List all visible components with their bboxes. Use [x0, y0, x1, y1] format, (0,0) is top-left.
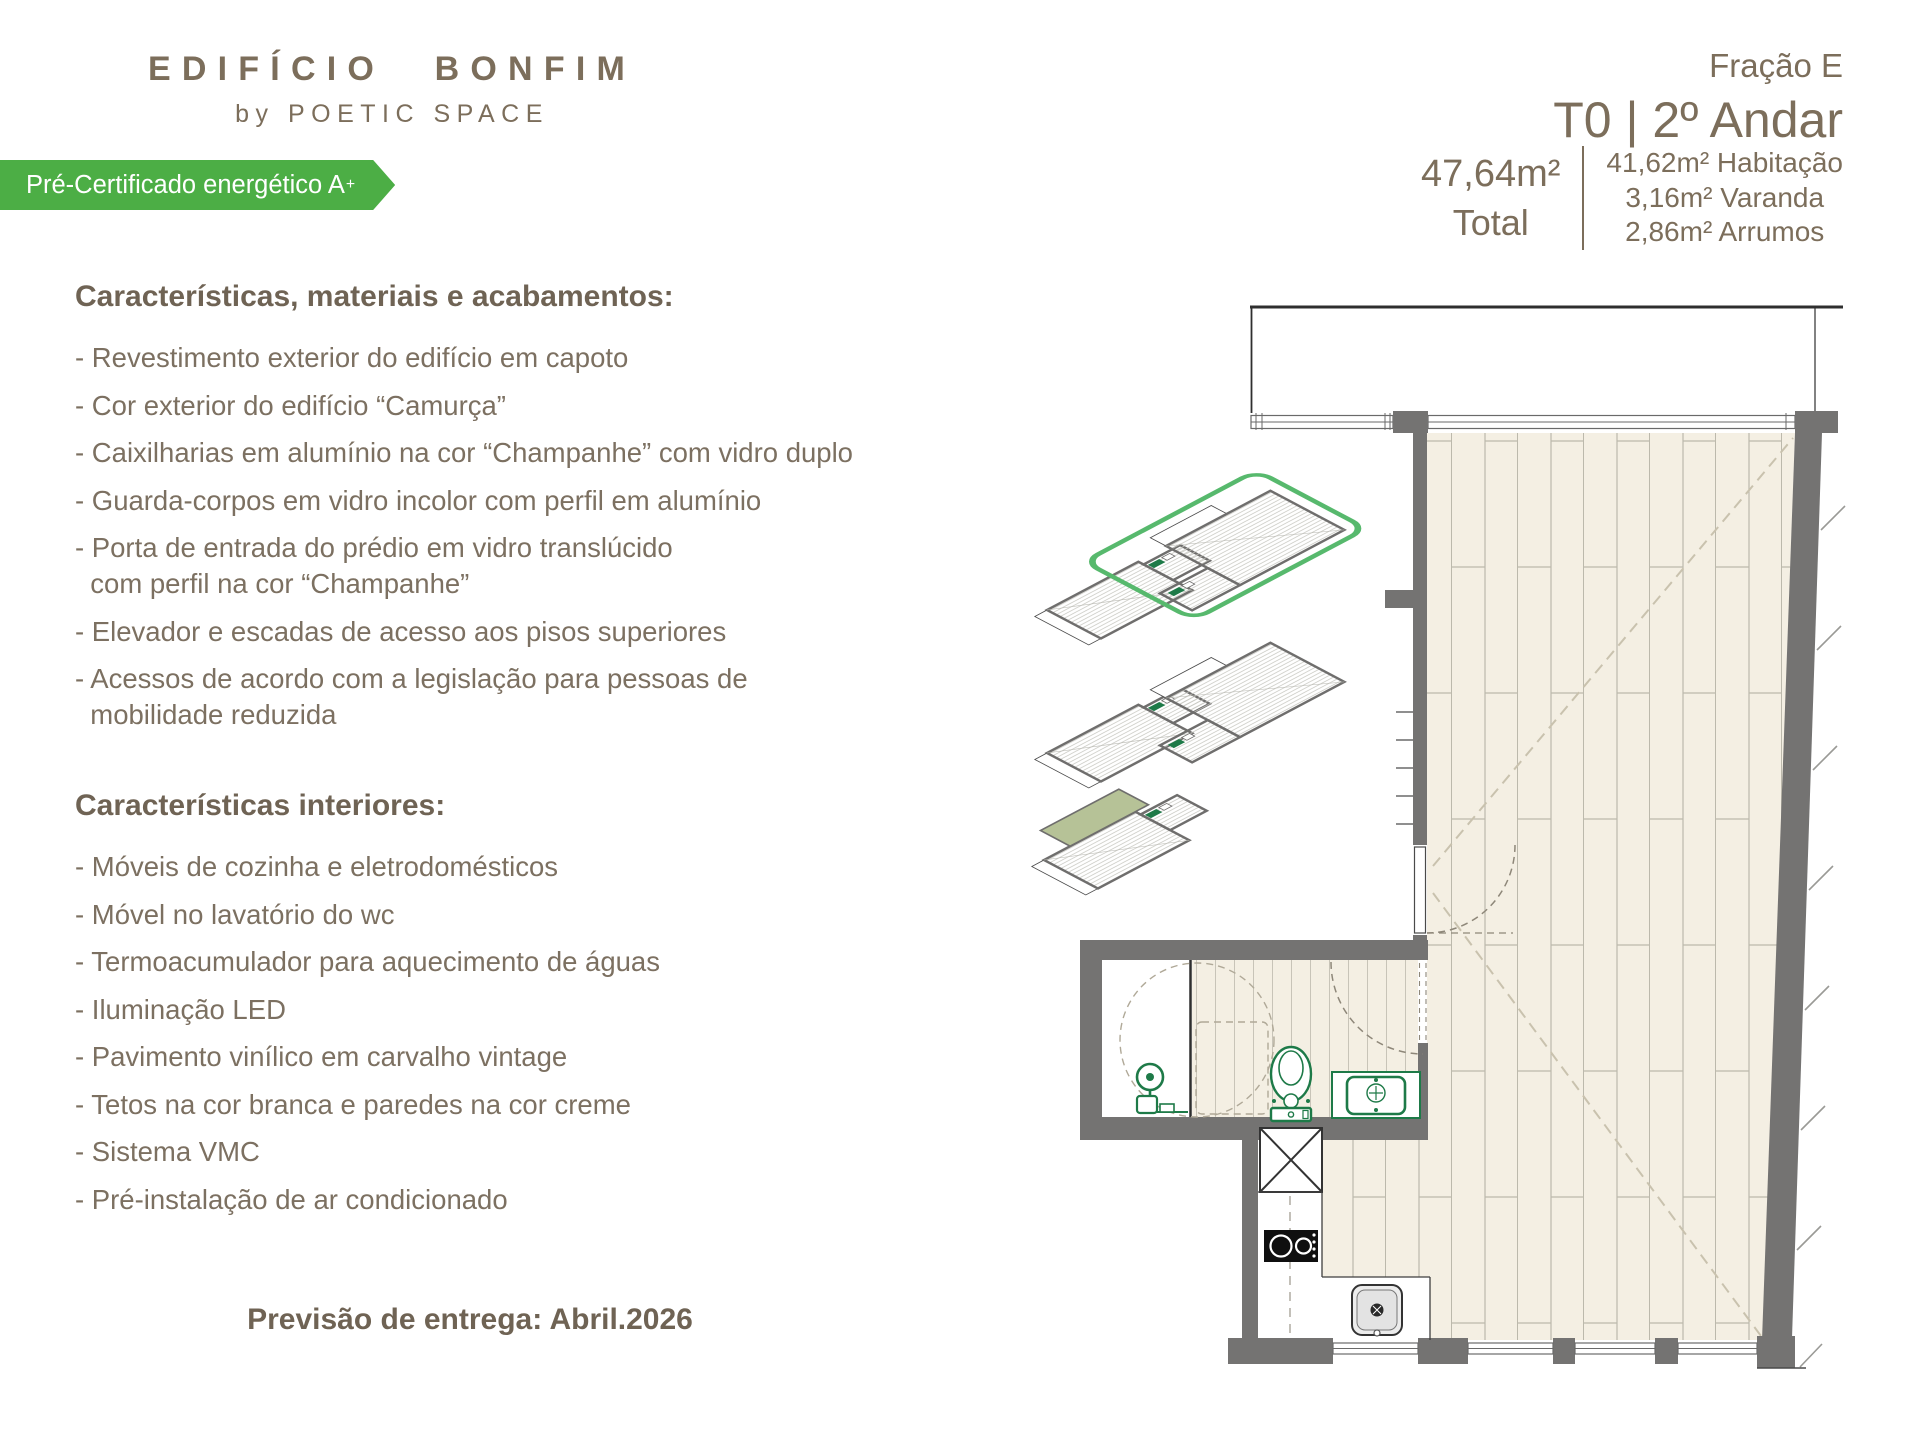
- section-title-interior: Características interiores:: [75, 789, 865, 823]
- main-floor-plan: [1080, 307, 1845, 1368]
- sink-icon: [1352, 1285, 1402, 1336]
- fraction-label: Fração E: [1553, 47, 1843, 85]
- total-area-value: 47,64m²: [1421, 153, 1560, 196]
- washbasin-icon: [1332, 1072, 1420, 1118]
- list-item: - Móvel no lavatório do wc: [75, 897, 865, 933]
- axonometric-stack: [1032, 471, 1366, 895]
- total-area-label: Total: [1421, 202, 1560, 244]
- list-item: - Móveis de cozinha e eletrodomésticos: [75, 849, 865, 885]
- delivery-date: Previsão de entrega: Abril.2026: [120, 1303, 820, 1337]
- typology-label: T0 | 2º Andar: [1553, 91, 1843, 149]
- badge-sup: +: [346, 176, 355, 194]
- area-breakdown: 41,62m² Habitação 3,16m² Varanda 2,86m² …: [1584, 146, 1843, 250]
- toilet-icon: [1271, 1047, 1311, 1121]
- logo-subtitle: by POETIC SPACE: [118, 100, 666, 129]
- main-room-floor: [1322, 433, 1795, 1340]
- badge-label: Pré-Certificado energético A: [26, 171, 345, 200]
- list-item: - Sistema VMC: [75, 1134, 865, 1170]
- list-item: - Pré-instalação de ar condicionado: [75, 1182, 865, 1218]
- list-item: - Elevador e escadas de acesso aos pisos…: [75, 614, 865, 650]
- hob-icon: [1264, 1230, 1318, 1262]
- list-item: - Porta de entrada do prédio em vidro tr…: [75, 530, 865, 602]
- list-item: - Revestimento exterior do edifício em c…: [75, 340, 865, 376]
- bathroom: [1102, 960, 1426, 1121]
- features: Características, materiais e acabamentos…: [75, 280, 865, 1229]
- list-item: - Iluminação LED: [75, 992, 865, 1028]
- list-item: - Cor exterior do edifício “Camurça”: [75, 388, 865, 424]
- list-item: - Caixilharias em alumínio na cor “Champ…: [75, 435, 865, 471]
- balcony: [1250, 307, 1843, 413]
- list-item: - Tetos na cor branca e paredes na cor c…: [75, 1087, 865, 1123]
- section-title-exterior: Características, materiais e acabamentos…: [75, 280, 865, 314]
- total-area: 47,64m² Total: [1421, 153, 1582, 244]
- list-item: - Acessos de acordo com a legislação par…: [75, 661, 865, 733]
- window-band-top: [1251, 411, 1838, 433]
- area-habitacao: 41,62m² Habitação: [1606, 146, 1843, 181]
- list-item: - Termoacumulador para aquecimento de ág…: [75, 944, 865, 980]
- exterior-feature-list: - Revestimento exterior do edifício em c…: [75, 340, 865, 733]
- energy-certificate-badge: Pré-Certificado energético A+: [0, 160, 395, 210]
- logo-title: EDIFÍCIO BONFIM: [118, 50, 666, 89]
- window-band-bottom: [1333, 1343, 1757, 1354]
- area-varanda: 3,16m² Varanda: [1606, 181, 1843, 216]
- list-item: - Guarda-corpos em vidro incolor com per…: [75, 483, 865, 519]
- interior-feature-list: - Móveis de cozinha e eletrodomésticos -…: [75, 849, 865, 1218]
- logo: EDIFÍCIO BONFIM by POETIC SPACE: [118, 50, 666, 129]
- unit-header: Fração E T0 | 2º Andar: [1553, 47, 1843, 149]
- area-arrumos: 2,86m² Arrumos: [1606, 215, 1843, 250]
- list-item: - Pavimento vinílico em carvalho vintage: [75, 1039, 865, 1075]
- areas-summary: 47,64m² Total 41,62m² Habitação 3,16m² V…: [1421, 146, 1843, 250]
